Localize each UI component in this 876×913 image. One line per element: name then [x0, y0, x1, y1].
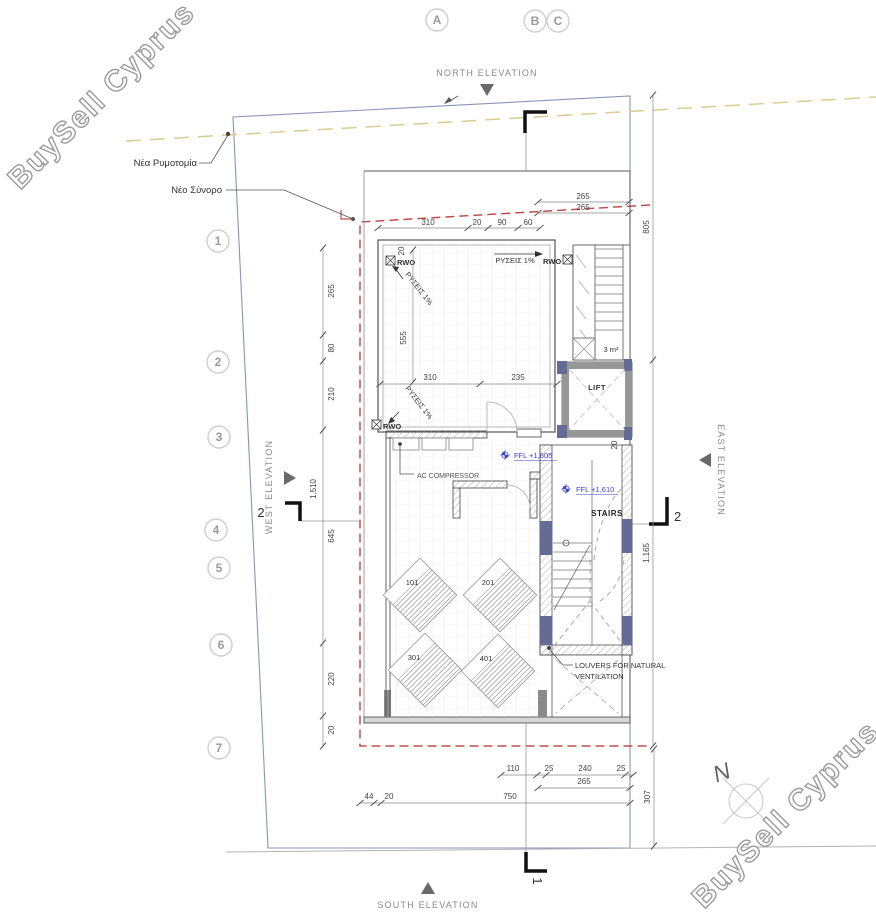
rwo-label-1: RWO [397, 258, 415, 267]
dim-750-bottom: 750 [503, 792, 517, 801]
lift-label: LIFT [588, 383, 606, 392]
ffl-1610-label: FFL +1,610 [576, 485, 614, 494]
dim-80-left: 80 [327, 343, 336, 352]
unit-301-label: 301 [408, 653, 421, 662]
dim-1165-right: 1.165 [642, 542, 651, 563]
dim-110-bottom: 110 [507, 764, 520, 773]
dim-20-top: 20 [473, 218, 482, 227]
compass-n-label: N [709, 757, 734, 787]
rwo-label-2: RWO [543, 257, 561, 266]
section-marker-1-bottom: 1 [526, 723, 547, 885]
grid-number-6: 6 [218, 638, 225, 652]
section-marker-2-right: 2 [631, 497, 681, 524]
section-1-number: 1 [530, 877, 545, 884]
north-elevation-arrow-icon [480, 84, 494, 96]
dim-310-top: 310 [421, 218, 435, 227]
dim-20-bottom: 20 [385, 792, 394, 801]
dim-60-top: 60 [524, 218, 533, 227]
dim-210-left: 210 [327, 387, 336, 401]
dim-310-inner: 310 [423, 373, 437, 382]
ffl-1605-label: FFL +1,605 [514, 451, 552, 460]
east-elevation-label: EAST ELEVATION [716, 424, 726, 516]
grid-number-2: 2 [215, 355, 222, 369]
dim-20-left: 20 [327, 725, 336, 734]
ac-compressor-label: AC COMPRESSOR [417, 473, 479, 480]
dim-805-right: 805 [642, 220, 651, 234]
grid-number-3: 3 [216, 430, 223, 444]
dim-265-tr2: 265 [576, 203, 590, 212]
lift-shaft: LIFT [557, 359, 632, 440]
grid-letter-c: C [554, 14, 563, 28]
dim-265-tr1: 265 [576, 192, 590, 201]
dim-265-left: 265 [327, 284, 336, 298]
dim-25-bottom1: 25 [545, 764, 554, 773]
dim-25-bottom2: 25 [617, 764, 626, 773]
section-marker-1-top [525, 112, 547, 171]
dim-44-bottom: 44 [365, 792, 374, 801]
west-elevation-arrow-icon [284, 471, 296, 485]
dim-20-roof: 20 [397, 246, 406, 255]
grid-letter-a: A [433, 13, 442, 27]
south-elevation-marker: SOUTH ELEVATION [377, 882, 478, 910]
south-elevation-label: SOUTH ELEVATION [377, 900, 478, 910]
dim-265-bottom: 265 [577, 777, 591, 786]
new-street-label: Νέα Ρυμοτομία [134, 158, 198, 169]
south-elevation-arrow-icon [421, 882, 435, 894]
upper-stair-block: 3 m² [573, 245, 630, 360]
main-staircase: STAIRS [540, 445, 632, 655]
grid-letter-markers: A B C [426, 9, 569, 32]
louvers-label-line2: VENTILATION [575, 672, 624, 681]
rwo-label-3: RWO [383, 422, 401, 431]
north-elevation-marker: NORTH ELEVATION [436, 68, 538, 96]
east-elevation-marker: EAST ELEVATION [699, 424, 726, 516]
dim-235-inner: 235 [511, 373, 525, 382]
unit-201-label: 201 [482, 578, 495, 587]
grid-number-5: 5 [216, 561, 223, 575]
louvers-label-line1: LOUVERS FOR NATURAL [575, 661, 665, 670]
stair-area-label: 3 m² [604, 345, 620, 354]
dim-90-top: 90 [498, 218, 507, 227]
grid-number-7: 7 [216, 741, 223, 755]
grid-number-markers: 1 2 3 4 5 6 7 [205, 230, 232, 759]
drawing-sheet: BuySell Cyprus BuySell Cyprus [0, 0, 876, 913]
grid-number-1: 1 [215, 234, 222, 248]
grid-letter-b: B [531, 14, 540, 28]
east-elevation-arrow-icon [699, 453, 711, 467]
dim-1510-left: 1.510 [309, 478, 318, 499]
slope-label-top: ΡΥΣΕΙΣ 1% [495, 256, 535, 265]
grid-number-4: 4 [213, 523, 220, 537]
stairs-label: STAIRS [591, 509, 623, 518]
unit-401-label: 401 [480, 654, 493, 663]
dim-645-left: 645 [327, 529, 336, 543]
west-elevation-label: WEST ELEVATION [264, 440, 274, 534]
dim-20-lift: 20 [610, 440, 619, 449]
north-elevation-label: NORTH ELEVATION [436, 68, 538, 78]
north-compass: N [709, 757, 769, 824]
site-plan-drawing: Νέα Ρυμοτομία Νέο Σύνορο 1 2 2 [0, 0, 876, 913]
site-leaders: Νέα Ρυμοτομία Νέο Σύνορο [134, 132, 355, 221]
dim-240-bottom: 240 [578, 764, 592, 773]
west-elevation-marker: WEST ELEVATION [264, 440, 296, 534]
new-boundary-label: Νέο Σύνορο [171, 185, 222, 196]
unit-101-label: 101 [406, 578, 419, 587]
dim-220-left: 220 [327, 672, 336, 686]
dim-555: 555 [399, 331, 408, 345]
dim-307-right: 307 [643, 790, 652, 804]
section-2-number-right: 2 [674, 509, 681, 524]
